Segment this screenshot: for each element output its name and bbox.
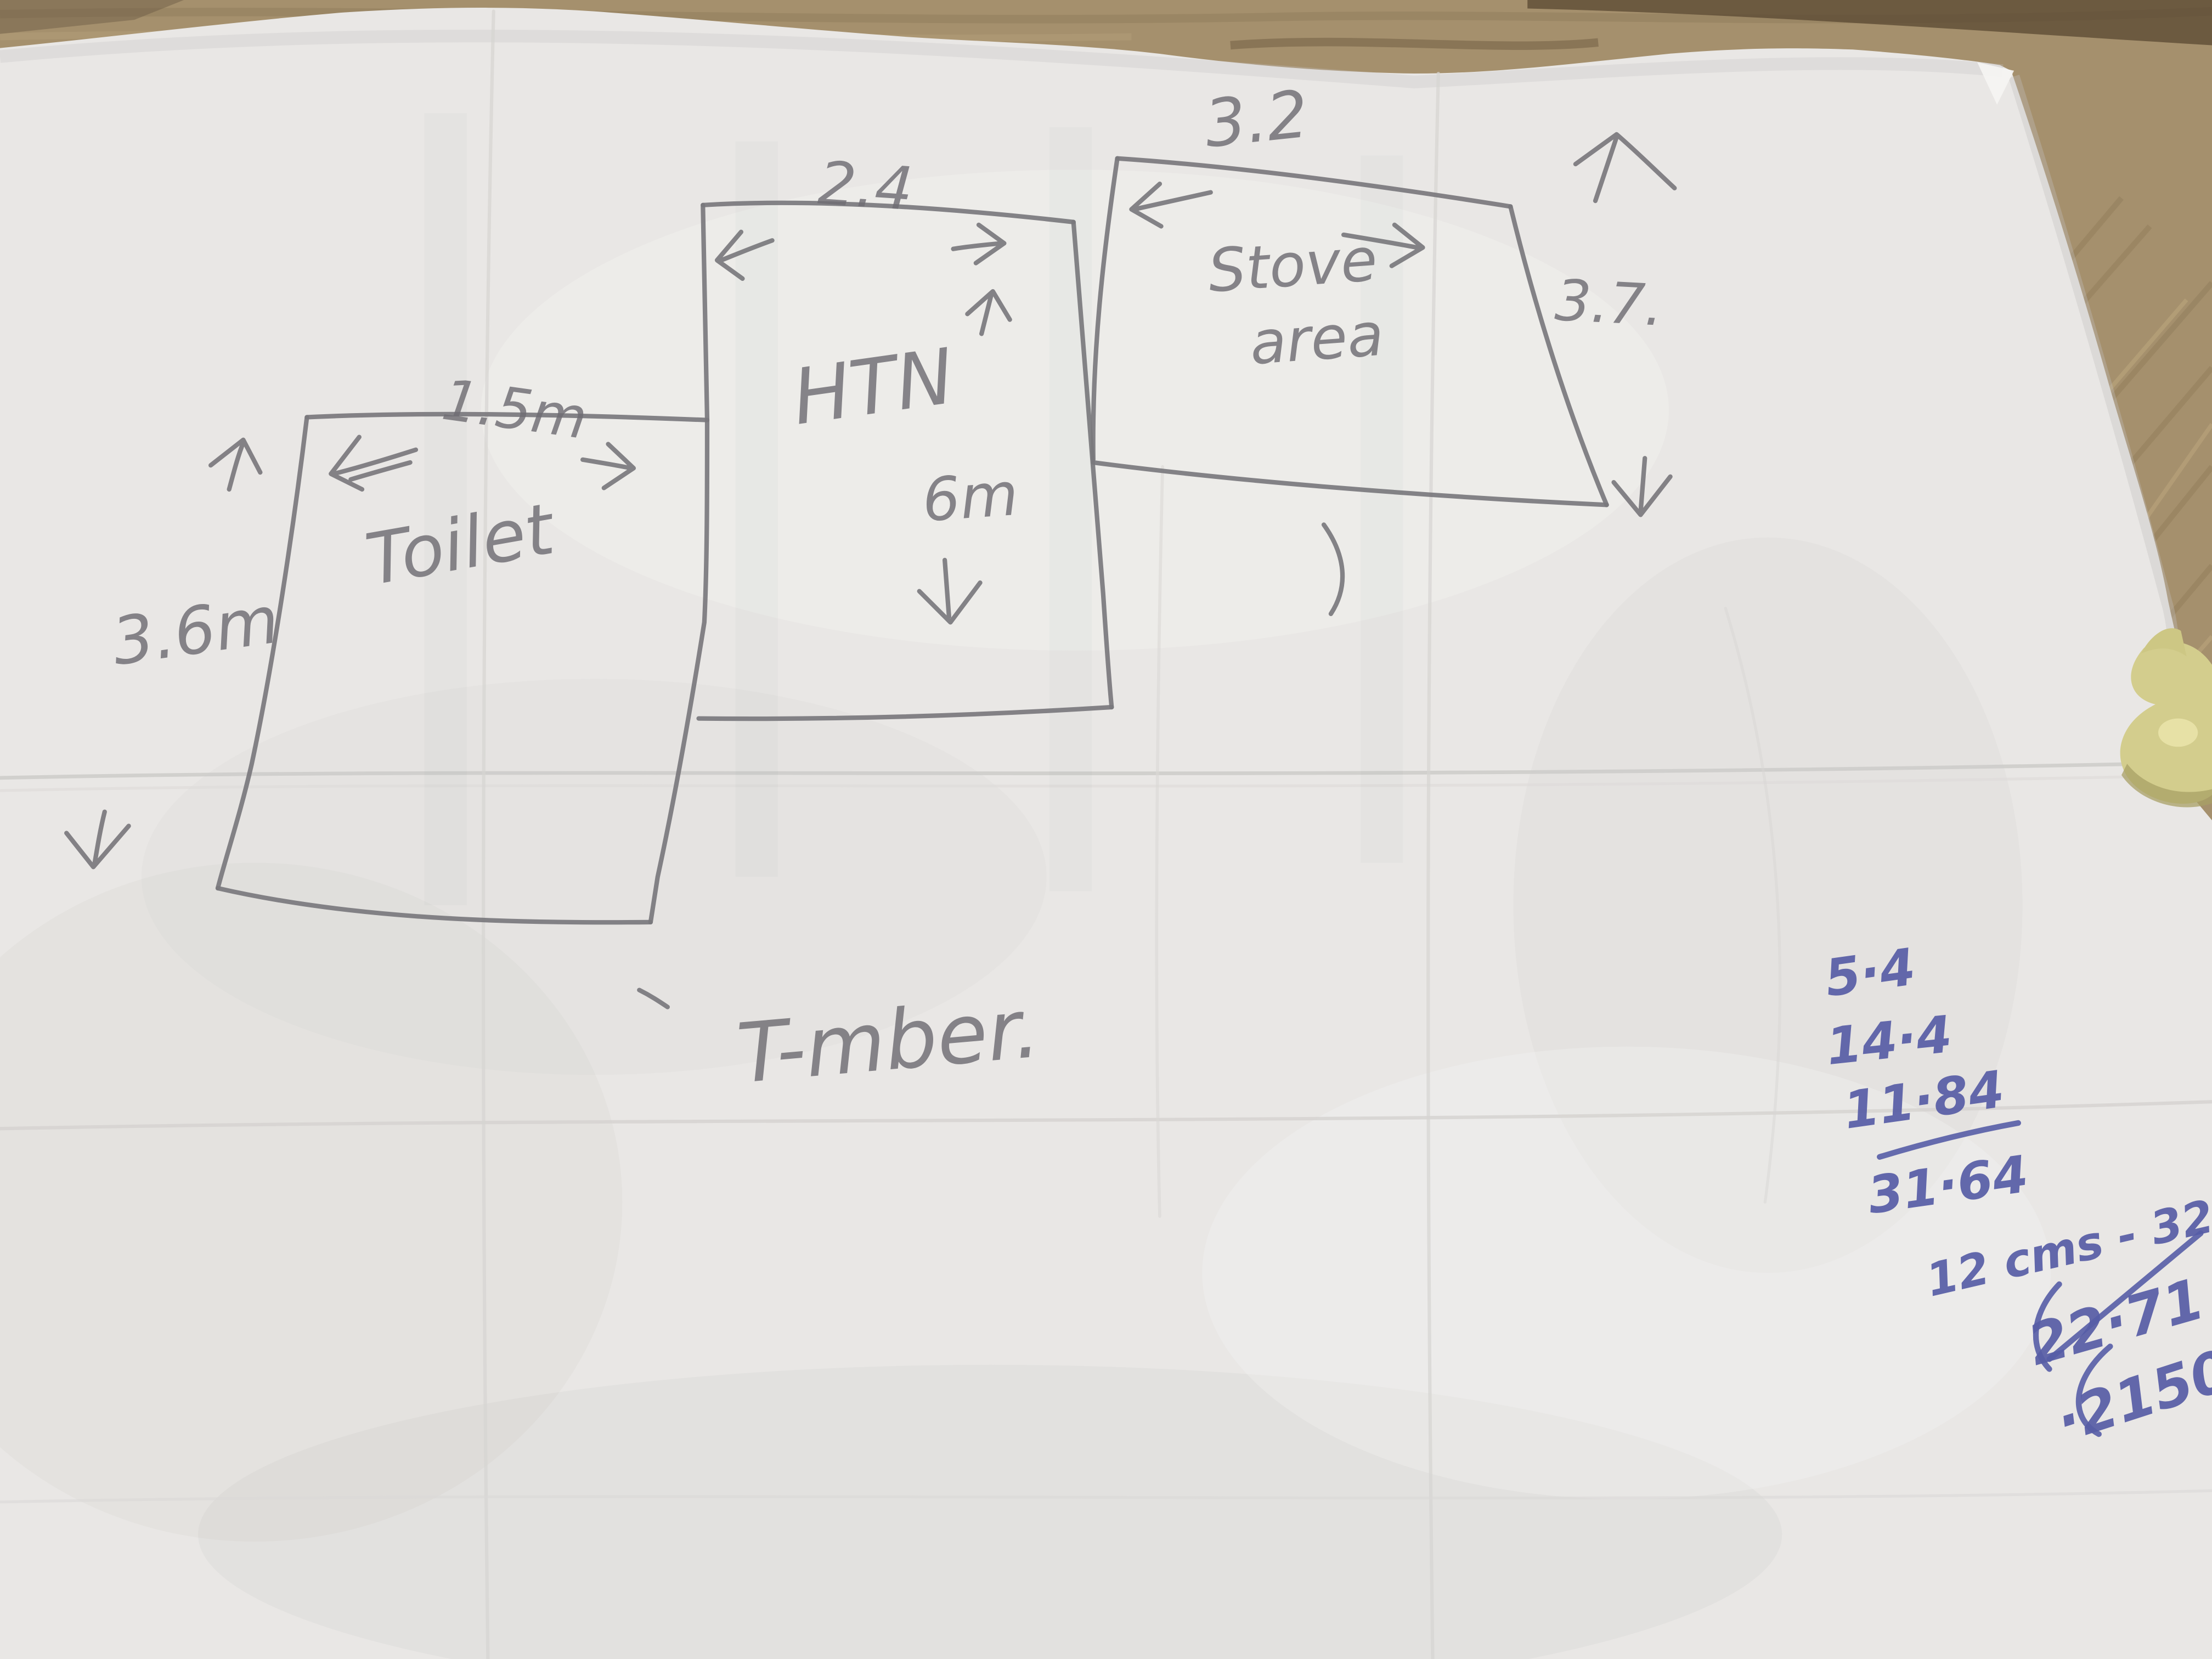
stove-width-dim: 3.2 (1201, 76, 1312, 162)
calc-addend-1: 5·4 (1821, 937, 1919, 1008)
stove-height-dim: 3.7. (1554, 268, 1665, 339)
stove-label-line1: Stove (1206, 225, 1379, 306)
putty-highlight (2158, 719, 2198, 747)
photo-of-floorplan-sketch: 3.2 Stove area 3.7. 2.4 HTN 6m 1.5m Toil… (0, 0, 2212, 1659)
sketch-scene: 3.2 Stove area 3.7. 2.4 HTN 6m 1.5m Toil… (0, 0, 2212, 1659)
wood-grain-streak (1231, 42, 1598, 46)
htn-height-dim: 6m (920, 460, 1020, 535)
htn-width-dim: 2.4 (816, 149, 915, 224)
stove-label-line2: area (1248, 300, 1386, 379)
